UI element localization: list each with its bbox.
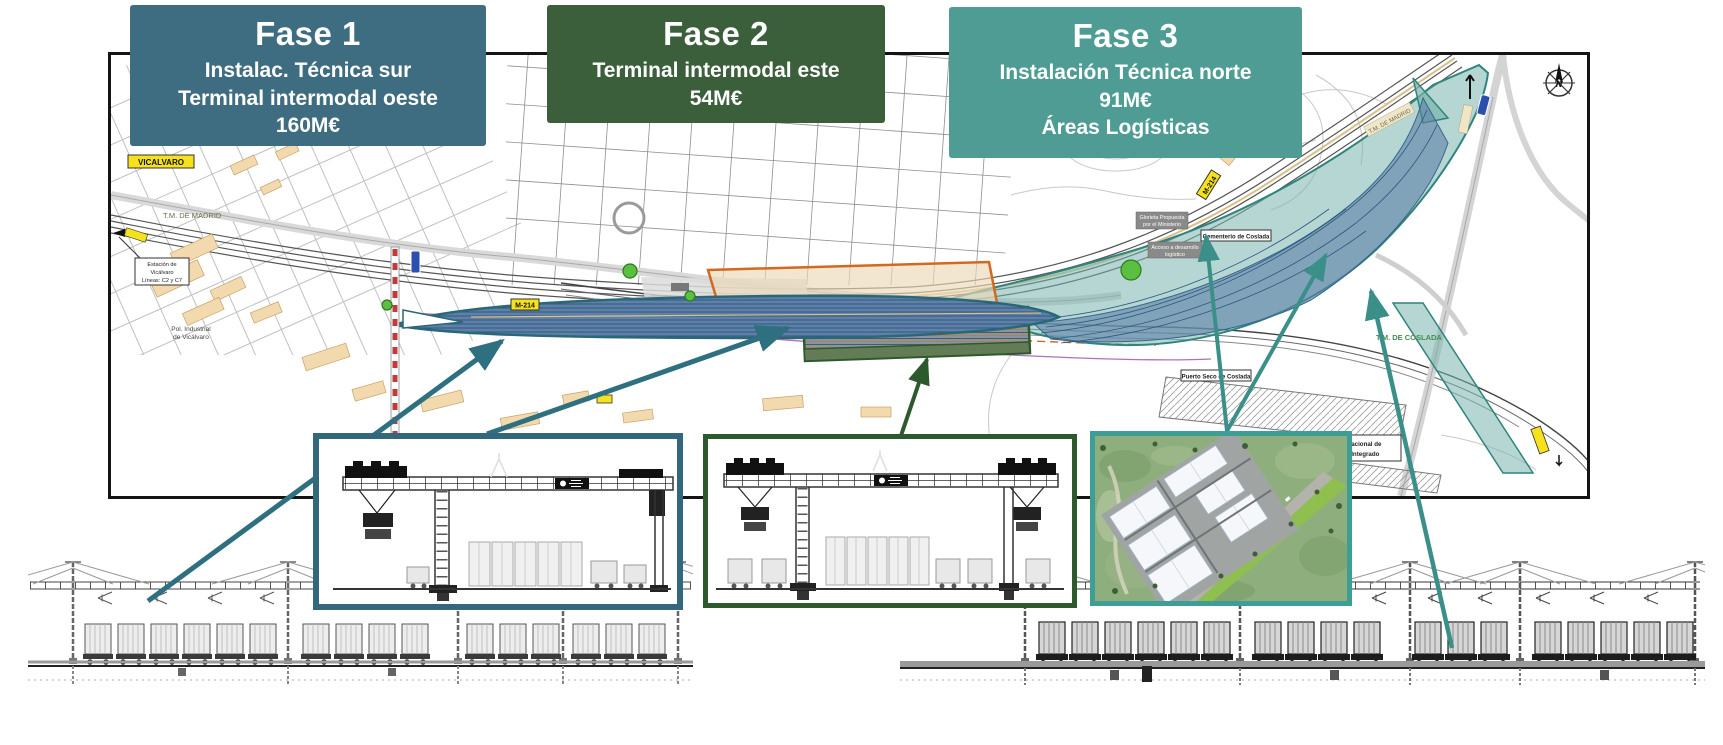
svg-text:logístico: logístico bbox=[1165, 252, 1185, 258]
phase-line: Terminal intermodal oeste bbox=[130, 85, 486, 113]
phase-title: Fase 1 bbox=[130, 15, 486, 53]
phase-card-fase-3: Fase 3 Instalación Técnica norte 91M€ Ár… bbox=[949, 7, 1302, 158]
infographic-canvas: VICALVARO T.M. DE MADRID Estación de Vic… bbox=[0, 0, 1723, 745]
phase-line: Terminal intermodal este bbox=[547, 57, 885, 85]
acceso-chip: Acceso a desarrollo logístico bbox=[1148, 242, 1202, 258]
svg-text:Estación de: Estación de bbox=[147, 262, 176, 268]
road-label-m214-east: M-214 bbox=[1196, 170, 1220, 200]
aerial-render bbox=[1095, 436, 1347, 601]
inset-crane-section-west bbox=[313, 433, 683, 610]
motorway-chip-west bbox=[411, 251, 420, 273]
svg-text:por el Ministerio: por el Ministerio bbox=[1143, 222, 1181, 228]
striped-road-marking bbox=[391, 247, 399, 437]
road-label-vicalvaro: VICALVARO bbox=[128, 155, 194, 168]
inset-aerial-logistics-park bbox=[1090, 431, 1352, 606]
svg-text:Glorieta Propuesta: Glorieta Propuesta bbox=[1140, 215, 1185, 221]
svg-text:VICALVARO: VICALVARO bbox=[138, 158, 184, 167]
svg-text:Cementerio de Coslada: Cementerio de Coslada bbox=[1203, 235, 1270, 241]
phase-title: Fase 3 bbox=[949, 17, 1302, 55]
crane-drawing-west bbox=[319, 439, 677, 604]
svg-text:Puerto Seco de Coslada: Puerto Seco de Coslada bbox=[1182, 375, 1251, 381]
inset-crane-section-east bbox=[703, 434, 1077, 608]
crane-drawing-east bbox=[708, 439, 1072, 603]
phase-line: Instalac. Técnica sur bbox=[130, 57, 486, 85]
pol-industrial-label: Pol. Industrial bbox=[171, 326, 211, 333]
phase-line: Instalación Técnica norte bbox=[949, 59, 1302, 87]
svg-text:Vicálvaro: Vicálvaro bbox=[151, 270, 174, 276]
compass-rose: N bbox=[1543, 63, 1575, 96]
phase-budget: 91M€ bbox=[949, 87, 1302, 115]
operator-logo-chip bbox=[555, 478, 589, 489]
phase-card-fase-1: Fase 1 Instalac. Técnica sur Terminal in… bbox=[130, 5, 486, 146]
fase1-area bbox=[395, 296, 1059, 338]
phase-line: Áreas Logísticas bbox=[949, 114, 1302, 142]
road-chip-southeast bbox=[1531, 426, 1549, 454]
south-arrow bbox=[1556, 455, 1562, 465]
svg-text:Acceso a desarrollo: Acceso a desarrollo bbox=[1151, 245, 1198, 251]
cementerio-label: Cementerio de Coslada bbox=[1201, 230, 1271, 241]
station-callout: Estación de Vicálvaro Líneas: C2 y C7 bbox=[119, 237, 189, 285]
road-label-m214-west: M-214 bbox=[511, 299, 539, 310]
puerto-seco-label: Puerto Seco de Coslada bbox=[1181, 370, 1251, 381]
tm-coslada-label: T.M. DE COSLADA bbox=[1376, 333, 1442, 342]
phase-card-fase-2: Fase 2 Terminal intermodal este 54M€ bbox=[547, 5, 885, 123]
operator-logo-chip bbox=[874, 475, 908, 486]
svg-text:de Vicálvaro: de Vicálvaro bbox=[173, 334, 209, 341]
phase-budget: 54M€ bbox=[547, 85, 885, 113]
phase-title: Fase 2 bbox=[547, 15, 885, 53]
svg-text:Líneas: C2 y C7: Líneas: C2 y C7 bbox=[142, 278, 182, 284]
tm-madrid-left-label: T.M. DE MADRID bbox=[163, 211, 222, 220]
road-chip-small bbox=[597, 395, 612, 403]
phase-budget: 160M€ bbox=[130, 112, 486, 140]
svg-text:M-214: M-214 bbox=[515, 303, 535, 310]
svg-text:N: N bbox=[1556, 79, 1563, 89]
glorieta-chip: Glorieta Propuesta por el Ministerio bbox=[1136, 212, 1188, 229]
